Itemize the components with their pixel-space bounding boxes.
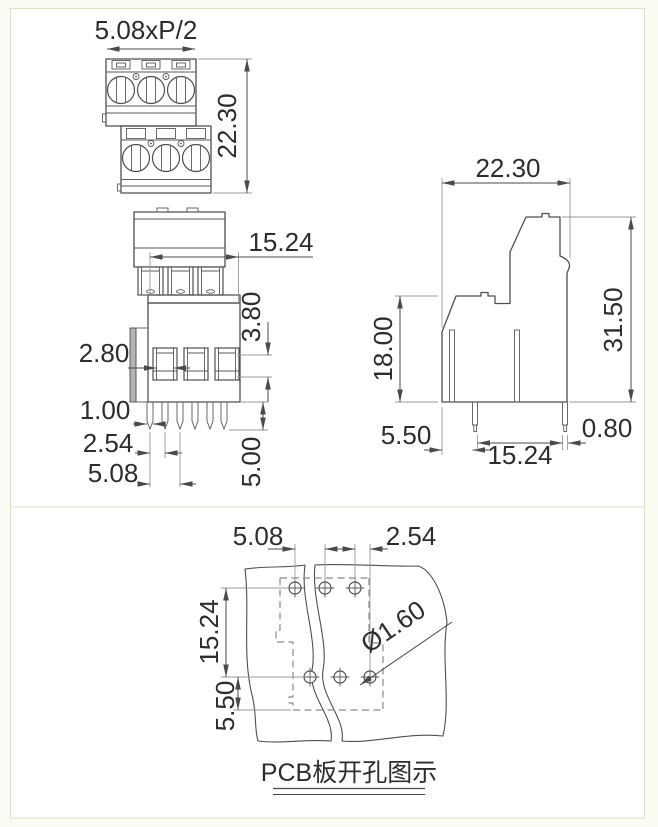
pcb-caption: PCB板开孔图示 (261, 759, 437, 787)
dim-side-depth: 22.30 (475, 153, 540, 183)
terminal-row-lower (153, 348, 239, 380)
dim-edge-offset: 5.50 (210, 681, 240, 732)
dim-pin-pitch: 2.54 (83, 428, 134, 458)
dim-pole-pitch: 5.08 (88, 458, 139, 488)
dim-edge-to-pin: 5.50 (381, 420, 432, 450)
screws-upper (108, 74, 195, 104)
dim-pin-length: 5.00 (236, 437, 266, 488)
dim-pin-thickness: 0.80 (582, 413, 633, 443)
terminal-row-upper (138, 267, 223, 295)
dim-side-lower-height: 18.00 (368, 316, 398, 381)
dim-row-offset: 2.54 (386, 521, 437, 551)
dim-row-pitch: 15.24 (487, 440, 552, 470)
dim-pin-width: 1.00 (80, 395, 131, 425)
dim-slot-width: 2.80 (79, 338, 130, 368)
dim-hole-pitch: 5.08 (233, 521, 284, 551)
dim-pitch-label: 5.08xP/2 (95, 15, 198, 45)
screws-lower (123, 141, 210, 172)
technical-drawing-svg: 5.08xP/2 (0, 0, 658, 827)
dim-side-total-height: 31.50 (598, 287, 628, 352)
dim-row-pitch-group: 15.24 (478, 435, 563, 470)
dim-front-height: 22.30 (212, 93, 242, 158)
dim-row-span: 15.24 (194, 599, 224, 664)
drawing-sheet: 5.08xP/2 (0, 0, 658, 827)
dim-body-width: 15.24 (248, 227, 313, 257)
dim-clamp-depth: 3.80 (236, 292, 266, 343)
